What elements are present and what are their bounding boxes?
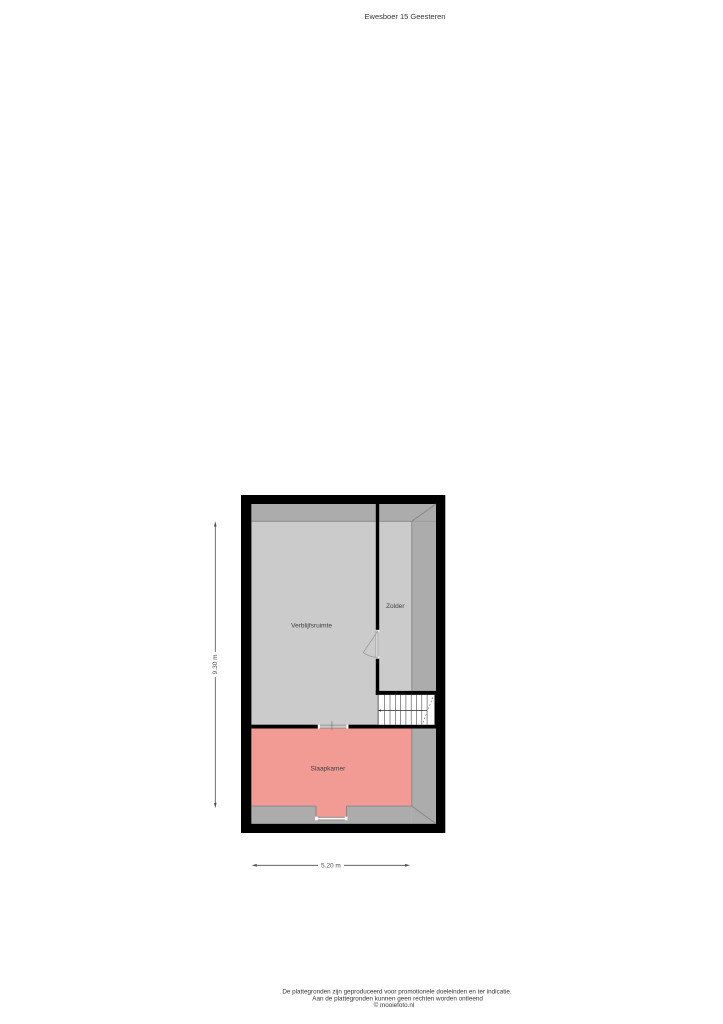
svg-text:Ewesboer 15 Geesteren: Ewesboer 15 Geesteren [365, 12, 446, 21]
svg-text:5.20 m: 5.20 m [321, 863, 341, 870]
svg-text:© mooiefoto.nl: © mooiefoto.nl [374, 1001, 415, 1009]
svg-text:9.30 m: 9.30 m [212, 654, 219, 674]
svg-text:Slaapkamer: Slaapkamer [311, 765, 347, 772]
svg-text:Zolder: Zolder [386, 603, 405, 610]
svg-text:Verblijfsruimte: Verblijfsruimte [291, 623, 332, 630]
